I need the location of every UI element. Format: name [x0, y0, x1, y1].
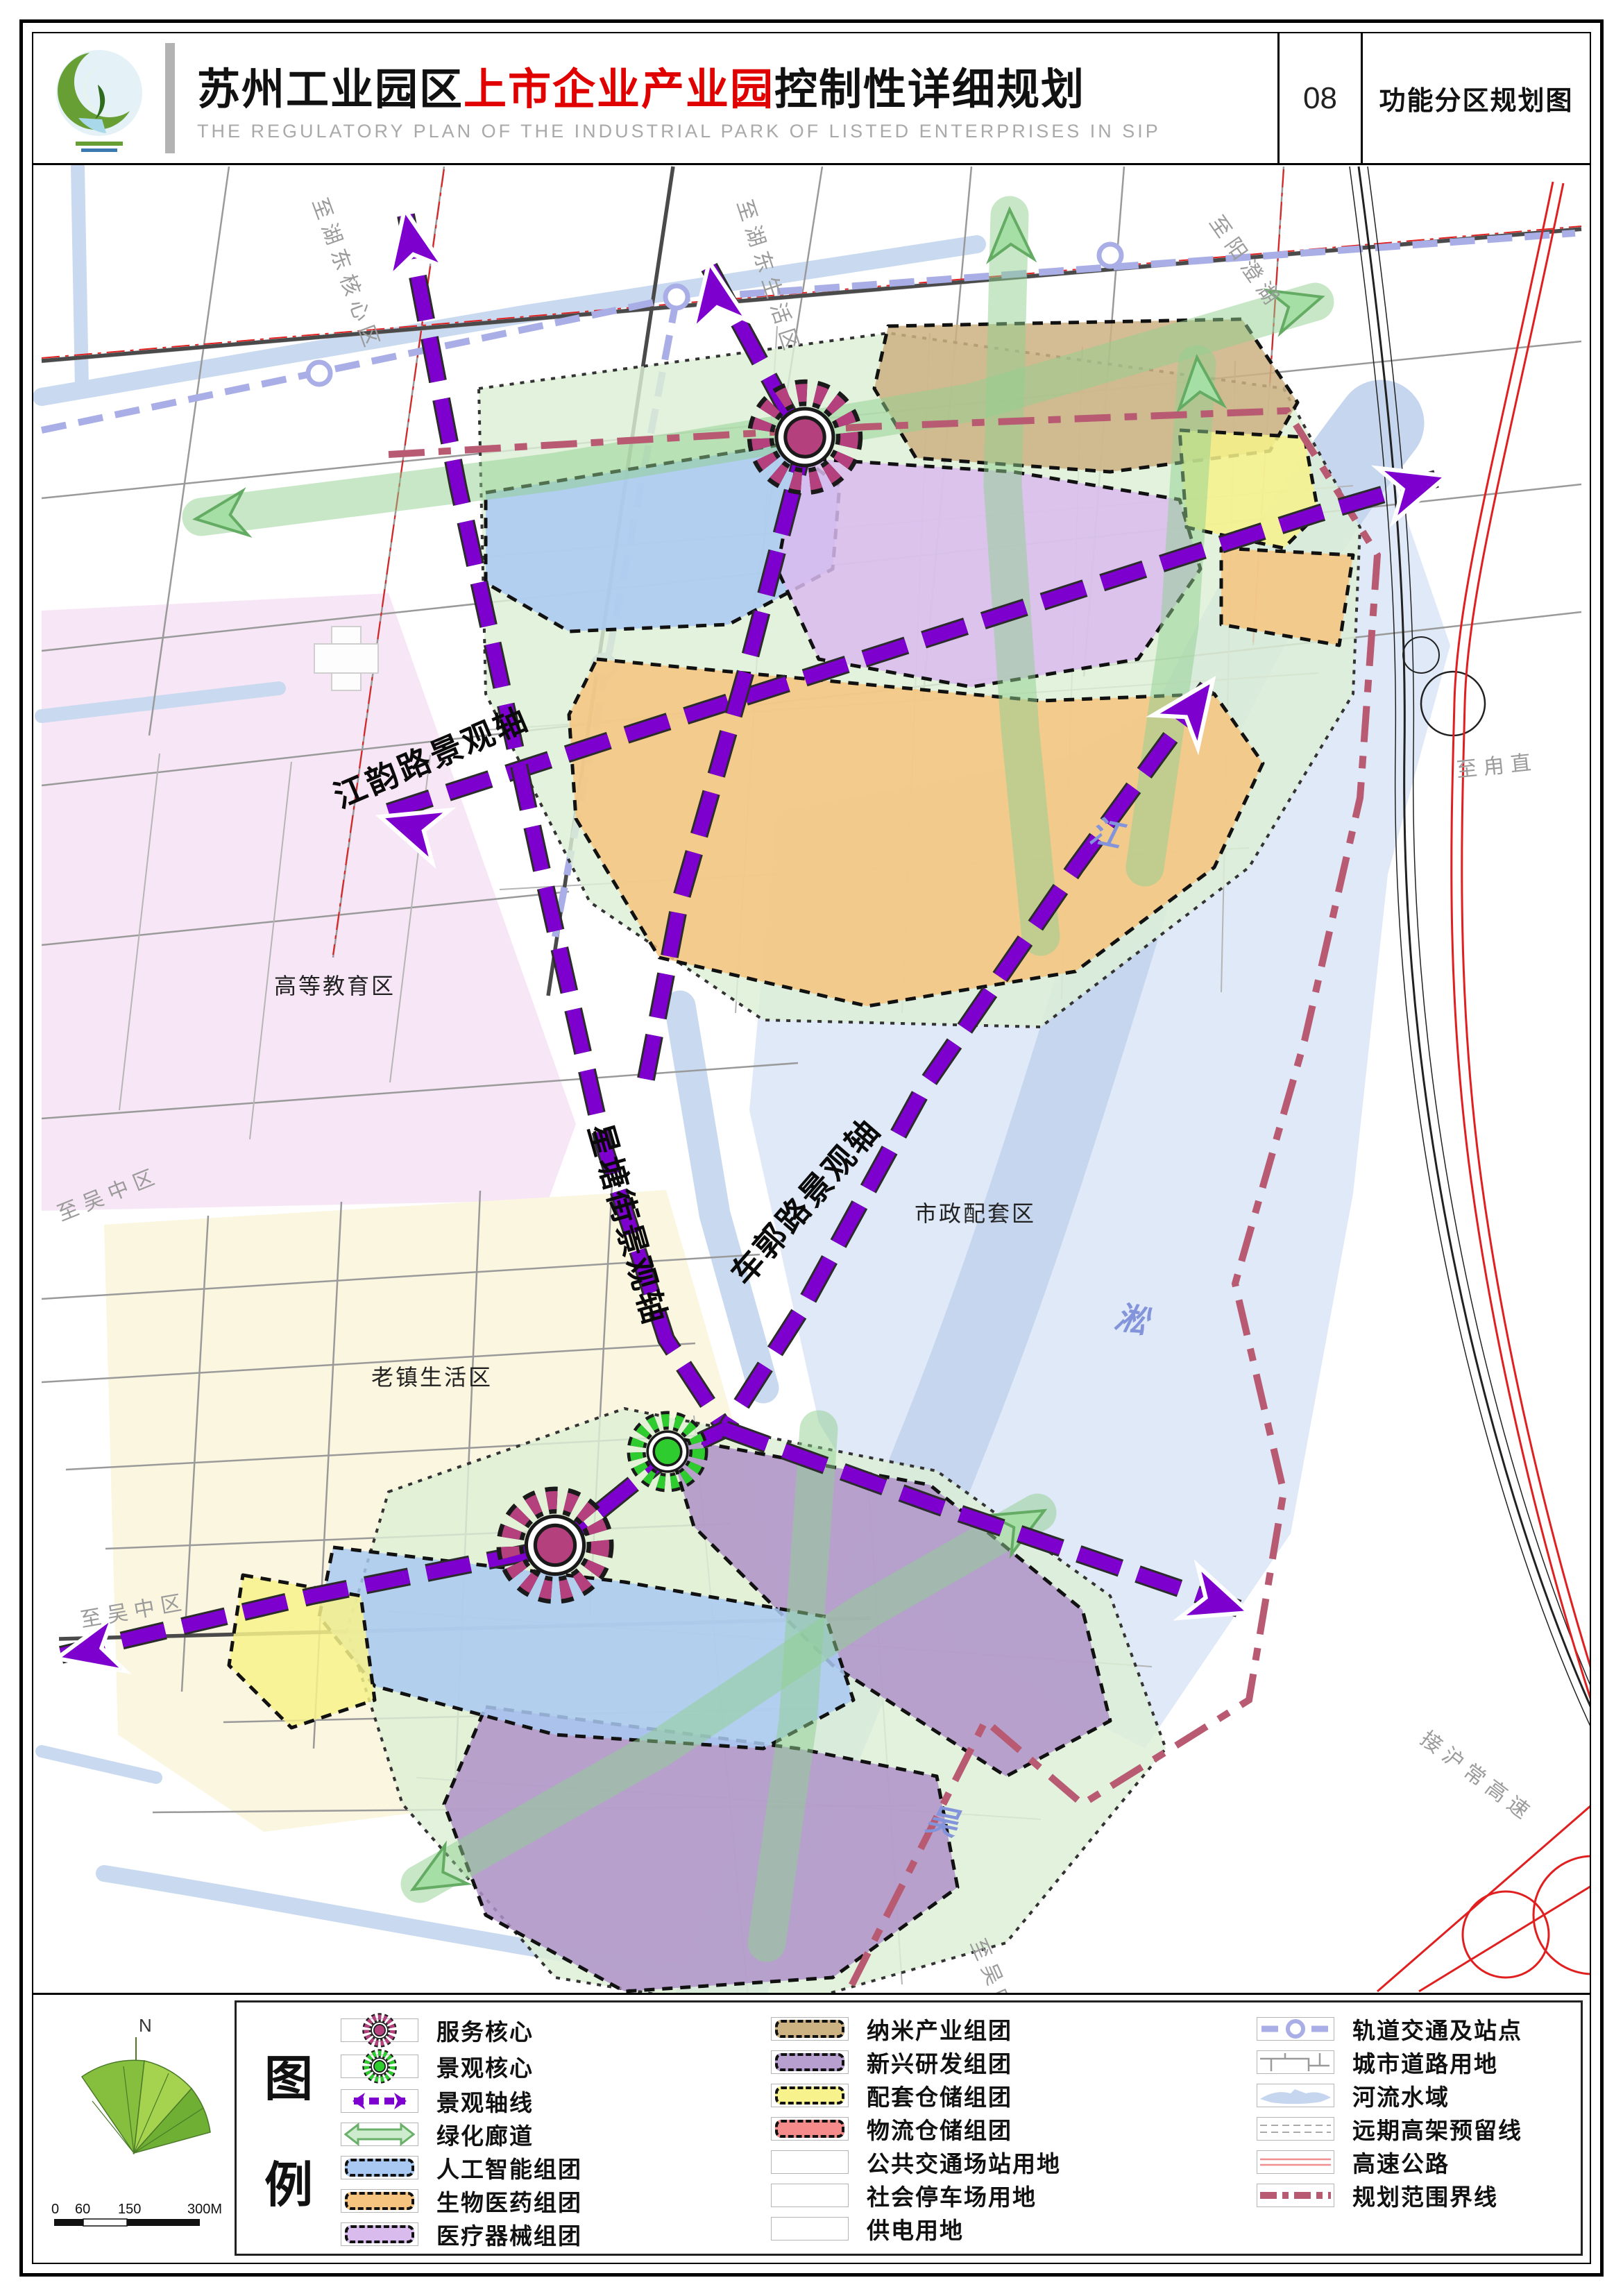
legend-strip: N 0 60 150 300M 图 例 [33, 1993, 1590, 2263]
swatch-expressway [1257, 2150, 1334, 2174]
legend-label: 配套仓储组团 [867, 2079, 1012, 2112]
swatch-green-corridor [341, 2123, 418, 2146]
legend-item: 城市道路用地 [1257, 2046, 1581, 2079]
legend-label: 供电用地 [867, 2212, 964, 2245]
sip-logo-icon [47, 40, 151, 157]
legend-item: 供电用地 [771, 2212, 1257, 2245]
scale-tick-60: 60 [75, 2202, 90, 2217]
legend-item: 远期高架预留线 [1257, 2112, 1581, 2145]
legend-item: 配套仓储组团 [771, 2079, 1257, 2112]
legend-label: 人工智能组团 [436, 2151, 582, 2184]
legend-label: 规划范围界线 [1352, 2179, 1498, 2212]
legend-item: 高速公路 [1257, 2145, 1581, 2179]
sheet-number: 08 [1277, 33, 1361, 163]
swatch-logistics-cluster [771, 2117, 849, 2141]
plan-map: 江韵路景观轴 星塘街景观轴 车郭路景观轴 高等教育区 老镇生活区 市政配套区 至… [33, 165, 1590, 1993]
swatch-urban-road [1257, 2050, 1334, 2074]
legend-item: 景观轴线 [341, 2084, 771, 2118]
sheet-main-title: 苏州工业园区上市企业产业园控制性详细规划 [197, 54, 1277, 117]
title-block: 苏州工业园区上市企业产业园控制性详细规划 THE REGULATORY PLAN… [33, 33, 1590, 165]
legend-label: 河流水域 [1352, 2079, 1450, 2112]
legend-column-1: 服务核心 景观核心 [341, 2002, 771, 2254]
legend-title: 图 例 [237, 2002, 341, 2254]
legend-label: 远期高架预留线 [1352, 2112, 1522, 2145]
swatch-ai-cluster [341, 2156, 418, 2179]
title-part-2: 上市企业产业园 [464, 66, 774, 114]
legend-item: 医疗器械组团 [341, 2218, 771, 2251]
legend-label: 纳米产业组团 [867, 2012, 1012, 2046]
legend-label: 公共交通场站用地 [867, 2145, 1061, 2179]
swatch-warehouse-cluster [771, 2084, 849, 2107]
plan-sheet: 苏州工业园区上市企业产业园控制性详细规划 THE REGULATORY PLAN… [0, 0, 1623, 2296]
legend-box: 图 例 服务核心 [235, 2000, 1583, 2256]
district-label-municipal: 市政配套区 [915, 1201, 1036, 1226]
swatch-medical-cluster [341, 2222, 418, 2246]
swatch-rd-cluster [771, 2050, 849, 2074]
legend-label: 景观核心 [436, 2050, 534, 2083]
swatch-rail-transit [1257, 2017, 1334, 2041]
plan-map-svg: 江韵路景观轴 星塘街景观轴 车郭路景观轴 高等教育区 老镇生活区 市政配套区 至… [33, 165, 1590, 1993]
legend-label: 轨道交通及站点 [1352, 2012, 1522, 2046]
legend-label: 社会停车场用地 [867, 2179, 1037, 2212]
scale-tick-150: 150 [118, 2202, 141, 2217]
scale-bar: 0 60 150 300M [51, 2202, 222, 2226]
legend-label: 绿化廊道 [436, 2118, 534, 2151]
legend-label: 新兴研发组团 [867, 2046, 1012, 2079]
legend-item: 景观核心 [341, 2048, 771, 2084]
swatch-landscape-core [341, 2055, 418, 2078]
legend-item: 新兴研发组团 [771, 2046, 1257, 2079]
sheet-name: 功能分区规划图 [1361, 33, 1590, 163]
legend-label: 高速公路 [1352, 2145, 1450, 2179]
legend-item: 公共交通场站用地 [771, 2145, 1257, 2179]
legend-item: 人工智能组团 [341, 2151, 771, 2184]
swatch-parking-land [771, 2184, 849, 2207]
legend-item: 物流仓储组团 [771, 2112, 1257, 2145]
district-label-oldtown: 老镇生活区 [371, 1365, 493, 1390]
swatch-elevated-reserved [1257, 2117, 1334, 2141]
legend-item: 生物医药组团 [341, 2184, 771, 2218]
swatch-power-land [771, 2217, 849, 2240]
legend-label: 景观轴线 [436, 2084, 534, 2118]
north-compass: N 0 60 150 300M [40, 2004, 228, 2254]
compass-and-scale: N 0 60 150 300M [33, 1995, 235, 2263]
swatch-nano-cluster [771, 2017, 849, 2041]
sip-logo [33, 33, 165, 163]
legend-label: 物流仓储组团 [867, 2112, 1012, 2145]
title-part-3: 控制性详细规划 [774, 66, 1085, 114]
legend-item: 绿化廊道 [341, 2118, 771, 2151]
legend-item: 服务核心 [341, 2012, 771, 2048]
legend-label: 医疗器械组团 [436, 2218, 582, 2251]
title-part-1: 苏州工业园区 [197, 66, 464, 114]
legend-label: 城市道路用地 [1352, 2046, 1498, 2079]
swatch-biomed-cluster [341, 2189, 418, 2213]
swatch-planning-boundary [1257, 2184, 1334, 2207]
title-area: 苏州工业园区上市企业产业园控制性详细规划 THE REGULATORY PLAN… [179, 33, 1277, 163]
swatch-transit-station-land [771, 2150, 849, 2174]
legend-column-3: 轨道交通及站点 城市道路用地 河流水域 [1257, 2002, 1581, 2254]
legend-title-char-2: 例 [264, 2146, 313, 2216]
scale-tick-0: 0 [51, 2202, 59, 2217]
north-label: N [139, 2015, 152, 2036]
legend-label: 生物医药组团 [436, 2184, 582, 2218]
legend-title-char-1: 图 [264, 2040, 313, 2110]
district-label-education: 高等教育区 [274, 973, 396, 998]
legend-label: 服务核心 [436, 2014, 534, 2047]
legend-item: 社会停车场用地 [771, 2179, 1257, 2212]
swatch-river-water [1257, 2084, 1334, 2107]
legend-item: 轨道交通及站点 [1257, 2012, 1581, 2046]
legend-item: 规划范围界线 [1257, 2179, 1581, 2212]
scale-tick-300: 300M [187, 2202, 222, 2217]
header-divider [165, 43, 175, 153]
legend-column-2: 纳米产业组团 新兴研发组团 配套仓储组团 物流仓储组团 [771, 2002, 1257, 2254]
legend-item: 河流水域 [1257, 2079, 1581, 2112]
swatch-service-core [341, 2018, 418, 2042]
swatch-landscape-axis [341, 2089, 418, 2113]
sheet-subtitle-en: THE REGULATORY PLAN OF THE INDUSTRIAL PA… [197, 121, 1277, 142]
legend-item: 纳米产业组团 [771, 2012, 1257, 2046]
